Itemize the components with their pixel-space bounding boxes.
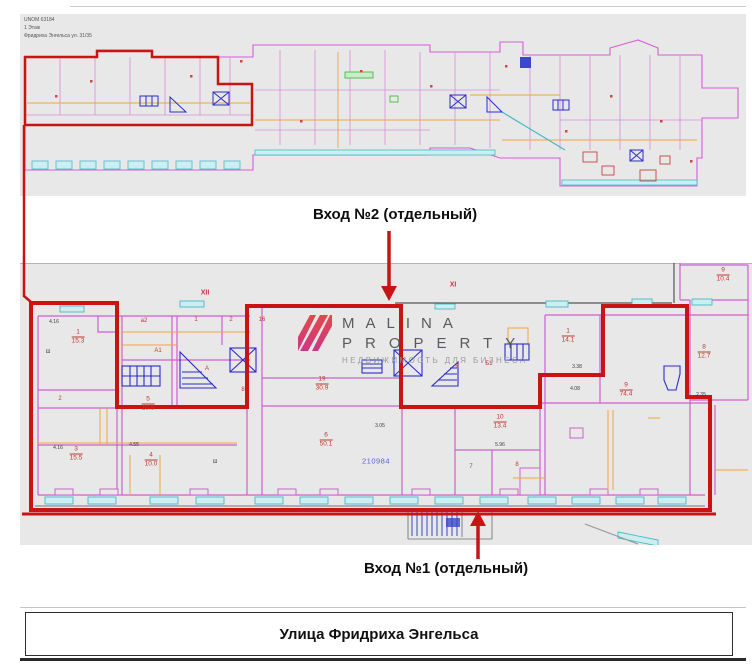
detail-plan-drawing bbox=[20, 263, 752, 545]
title-block-line2: 1 Этаж bbox=[24, 24, 92, 32]
title-block-line3: Фридриха Энгельса ул. 31/35 bbox=[24, 32, 92, 40]
malina-logo-icon bbox=[298, 313, 332, 353]
page-top-rule bbox=[70, 6, 746, 7]
title-block: UNOM 63184 1 Этаж Фридриха Энгельса ул. … bbox=[24, 16, 92, 40]
watermark-tagline: НЕДВИЖИМОСТЬ ДЛЯ БИЗНЕСА bbox=[342, 356, 528, 365]
overview-plan-drawing bbox=[20, 14, 746, 196]
floor-plan-page: UNOM 63184 1 Этаж Фридриха Энгельса ул. … bbox=[0, 0, 752, 671]
street-box-top-rule bbox=[20, 607, 746, 608]
overview-plan bbox=[20, 14, 746, 196]
detail-plan bbox=[20, 263, 752, 545]
watermark-brand-line2: PROPERTY bbox=[342, 335, 528, 352]
street-name: Улица Фридриха Энгельса bbox=[280, 626, 479, 643]
title-block-line1: UNOM 63184 bbox=[24, 16, 92, 24]
malina-watermark: MALINA PROPERTY НЕДВИЖИМОСТЬ ДЛЯ БИЗНЕСА bbox=[298, 313, 528, 365]
watermark-brand-line1: MALINA bbox=[342, 315, 528, 332]
entrance-1-label: Вход №1 (отдельный) bbox=[346, 560, 546, 577]
page-bottom-rule bbox=[20, 658, 746, 661]
entrance-2-label: Вход №2 (отдельный) bbox=[295, 206, 495, 223]
street-name-box: Улица Фридриха Энгельса bbox=[25, 612, 733, 656]
